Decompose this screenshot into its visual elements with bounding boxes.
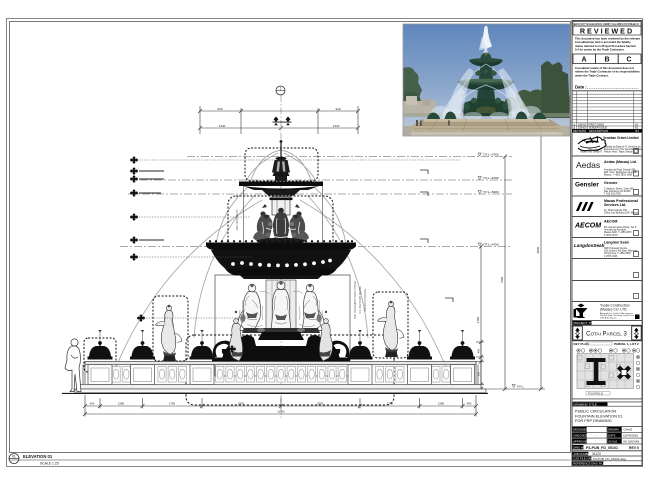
svg-text:■ DO NOT SCALE DWGS. VERIFY AL: ■ DO NOT SCALE DWGS. VERIFY ALL DIMS ON … (574, 22, 640, 26)
svg-text:460: 460 (90, 402, 95, 406)
svg-text:F.F.L.: F.F.L. (517, 385, 524, 389)
svg-text:AECOM: AECOM (604, 220, 617, 224)
svg-text:T.P.L +6780: T.P.L +6780 (483, 176, 499, 180)
svg-text:C: C (626, 57, 631, 64)
svg-text:1790: 1790 (169, 402, 176, 406)
svg-text:Services Ltd.: Services Ltd. (604, 203, 626, 207)
svg-text:1340: 1340 (333, 124, 340, 128)
svg-text:-: - (595, 439, 596, 443)
svg-text:CHECKED: CHECKED (573, 434, 587, 438)
svg-text:status referred to in Project: status referred to in Project Procedure … (575, 44, 636, 48)
svg-text:© travelphoto: © travelphoto (543, 131, 560, 135)
svg-text:DRAWING TITLE: DRAWING TITLE (574, 402, 597, 406)
svg-text:FRP ORNAMENT PAINT FINISH: FRP ORNAMENT PAINT FINISH (353, 281, 357, 319)
svg-text:940: 940 (335, 107, 340, 111)
svg-text:940: 940 (217, 107, 222, 111)
svg-text:460: 460 (467, 402, 472, 406)
svg-text:REVIEWED: REVIEWED (580, 26, 634, 35)
svg-text:P3-PUB_FD_05101.dwg: P3-PUB_FD_05101.dwg (593, 457, 626, 461)
svg-text:4750: 4750 (476, 316, 480, 323)
svg-text:relieve the Trade Contractor: relieve the Trade Contractor of its resp… (575, 70, 640, 74)
svg-text:(Macau) CO. LTD.: (Macau) CO. LTD. (600, 307, 628, 311)
svg-text:Gensler: Gensler (575, 182, 599, 189)
svg-text:DATE: DATE (608, 434, 615, 438)
svg-text:DWG NO: DWG NO (573, 446, 586, 450)
svg-text:under the Trade Contract.: under the Trade Contract. (575, 73, 609, 77)
svg-text:P3-PUB_FD_05101: P3-PUB_FD_05101 (586, 446, 618, 450)
svg-text:LangdonSeah: LangdonSeah (574, 243, 605, 248)
svg-text:Gensler: Gensler (604, 181, 618, 185)
svg-text:Aedas: Aedas (576, 160, 600, 170)
svg-text:REV 0: REV 0 (629, 446, 639, 450)
svg-text:Date :: Date : (575, 85, 587, 90)
svg-text:01: 01 (12, 455, 16, 459)
svg-text:REFERENCE DWG FILE NAME: REFERENCE DWG FILE NAME (573, 461, 614, 465)
svg-text:1790: 1790 (387, 402, 394, 406)
svg-text:T.P.L +4750: T.P.L +4750 (483, 243, 499, 247)
svg-text:DRAWN: DRAWN (608, 428, 618, 432)
svg-text:15/04/2010: 15/04/2010 (623, 434, 638, 438)
svg-text:11700: 11700 (277, 410, 285, 414)
svg-text:13/F A-B, Macau: 13/F A-B, Macau (600, 317, 617, 320)
svg-text:PROJECT TITLE: PROJECT TITLE (574, 321, 597, 325)
svg-text:690: 690 (477, 371, 481, 376)
svg-text:1280: 1280 (118, 402, 125, 406)
svg-text:Consultants(s) and is accorded: Consultants(s) and is accorded the fatal… (575, 40, 631, 44)
svg-text:-: - (595, 434, 596, 438)
svg-text:7600: 7600 (500, 276, 504, 283)
svg-text:T 415.433.3700: T 415.433.3700 (604, 193, 621, 196)
svg-text:1280: 1280 (438, 402, 445, 406)
svg-text:T.P.L +5900: T.P.L +5900 (483, 190, 499, 194)
svg-text:SCALE 1:25: SCALE 1:25 (40, 462, 59, 466)
svg-text:PARCEL 1, LOT 2: PARCEL 1, LOT 2 (614, 342, 639, 346)
svg-text:DESIGNED: DESIGNED (573, 428, 588, 432)
svg-text:Venetian Orient Limited: Venetian Orient Limited (603, 136, 639, 140)
svg-text:CAHO: CAHO (624, 428, 633, 432)
svg-text:CAD FILE NAME: CAD FILE NAME (573, 457, 595, 461)
svg-text:AECOM: AECOM (574, 223, 601, 230)
svg-text:FOUNTAIN 01: FOUNTAIN 01 (588, 392, 604, 395)
svg-text:1340: 1340 (219, 124, 226, 128)
svg-text:KEY PLAN: KEY PLAN (574, 342, 589, 346)
svg-text:1: 1 (280, 87, 282, 91)
svg-text:JOB NUMBER: JOB NUMBER (573, 452, 591, 456)
svg-text:T.P.L +7600: T.P.L +7600 (483, 153, 499, 157)
svg-text:AS SHOWN: AS SHOWN (623, 439, 639, 443)
svg-text:This document has been reviewe: This document has been reviewed by the r… (575, 37, 640, 41)
svg-text:APPROVED: APPROVED (573, 439, 589, 443)
svg-text:31123: 31123 (592, 452, 601, 456)
svg-text:VENETIAN ORIENT: VENETIAN ORIENT (580, 151, 602, 154)
svg-text:SCALE: SCALE (608, 439, 617, 443)
svg-text:FOR FRP DRAWING: FOR FRP DRAWING (575, 418, 612, 423)
svg-text:-: - (280, 93, 281, 96)
svg-text:REFER TO DETAIL: REFER TO DETAIL (363, 288, 367, 311)
svg-text:B: B (604, 57, 609, 64)
svg-text:S.S. SUPPORT FRAME: S.S. SUPPORT FRAME (358, 286, 362, 314)
svg-text:5.4 for action by the Trade Co: 5.4 for action by the Trade Contractor. (575, 48, 625, 52)
svg-text:Langdon Seah: Langdon Seah (604, 241, 629, 245)
svg-text:ELEVATION 01: ELEVATION 01 (23, 454, 53, 459)
svg-text:F 2576 0416: F 2576 0416 (604, 255, 618, 258)
svg-text:A: A (581, 57, 586, 64)
svg-text:Consultant review of this docu: Consultant review of this document does … (575, 66, 634, 70)
svg-text:450: 450 (477, 348, 481, 353)
svg-text:Resort Hotel, Taipa, Macau: Resort Hotel, Taipa, Macau (604, 151, 633, 154)
svg-text:F 2872 2279: F 2872 2279 (604, 234, 618, 237)
svg-text:2370: 2370 (238, 402, 245, 406)
svg-text:FRP ORNAMENT: FRP ORNAMENT (235, 209, 239, 230)
svg-text:2370: 2370 (317, 402, 324, 406)
svg-text:Aedas (Macau) Ltd.: Aedas (Macau) Ltd. (604, 160, 637, 164)
svg-text:9830: 9830 (536, 246, 540, 253)
svg-text:Macau, T +853 2833 1088: Macau, T +853 2833 1088 (604, 174, 633, 177)
